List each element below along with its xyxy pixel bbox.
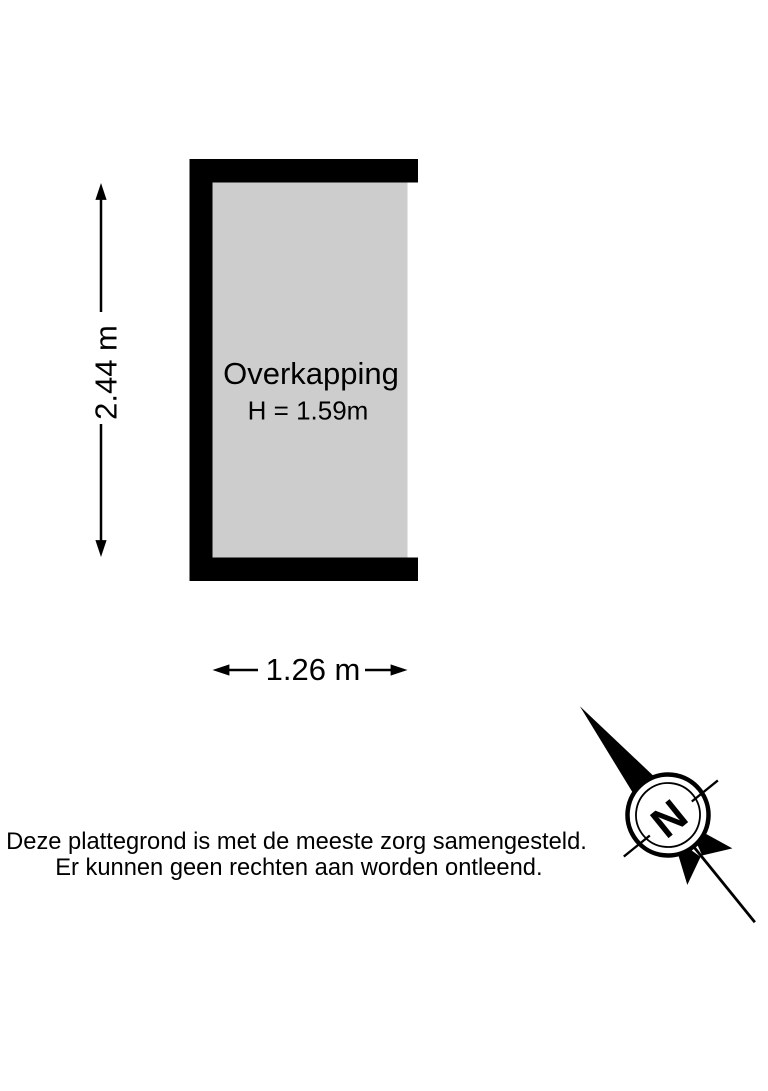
svg-text:H = 1.59m: H = 1.59m bbox=[248, 396, 369, 426]
svg-text:Overkapping: Overkapping bbox=[223, 356, 399, 391]
svg-text:2.44 m: 2.44 m bbox=[89, 325, 124, 420]
svg-text:Er kunnen geen rechten aan wor: Er kunnen geen rechten aan worden ontlee… bbox=[55, 855, 542, 881]
svg-text:1.26 m: 1.26 m bbox=[266, 652, 361, 687]
svg-text:Deze plattegrond is met de mee: Deze plattegrond is met de meeste zorg s… bbox=[6, 829, 587, 855]
